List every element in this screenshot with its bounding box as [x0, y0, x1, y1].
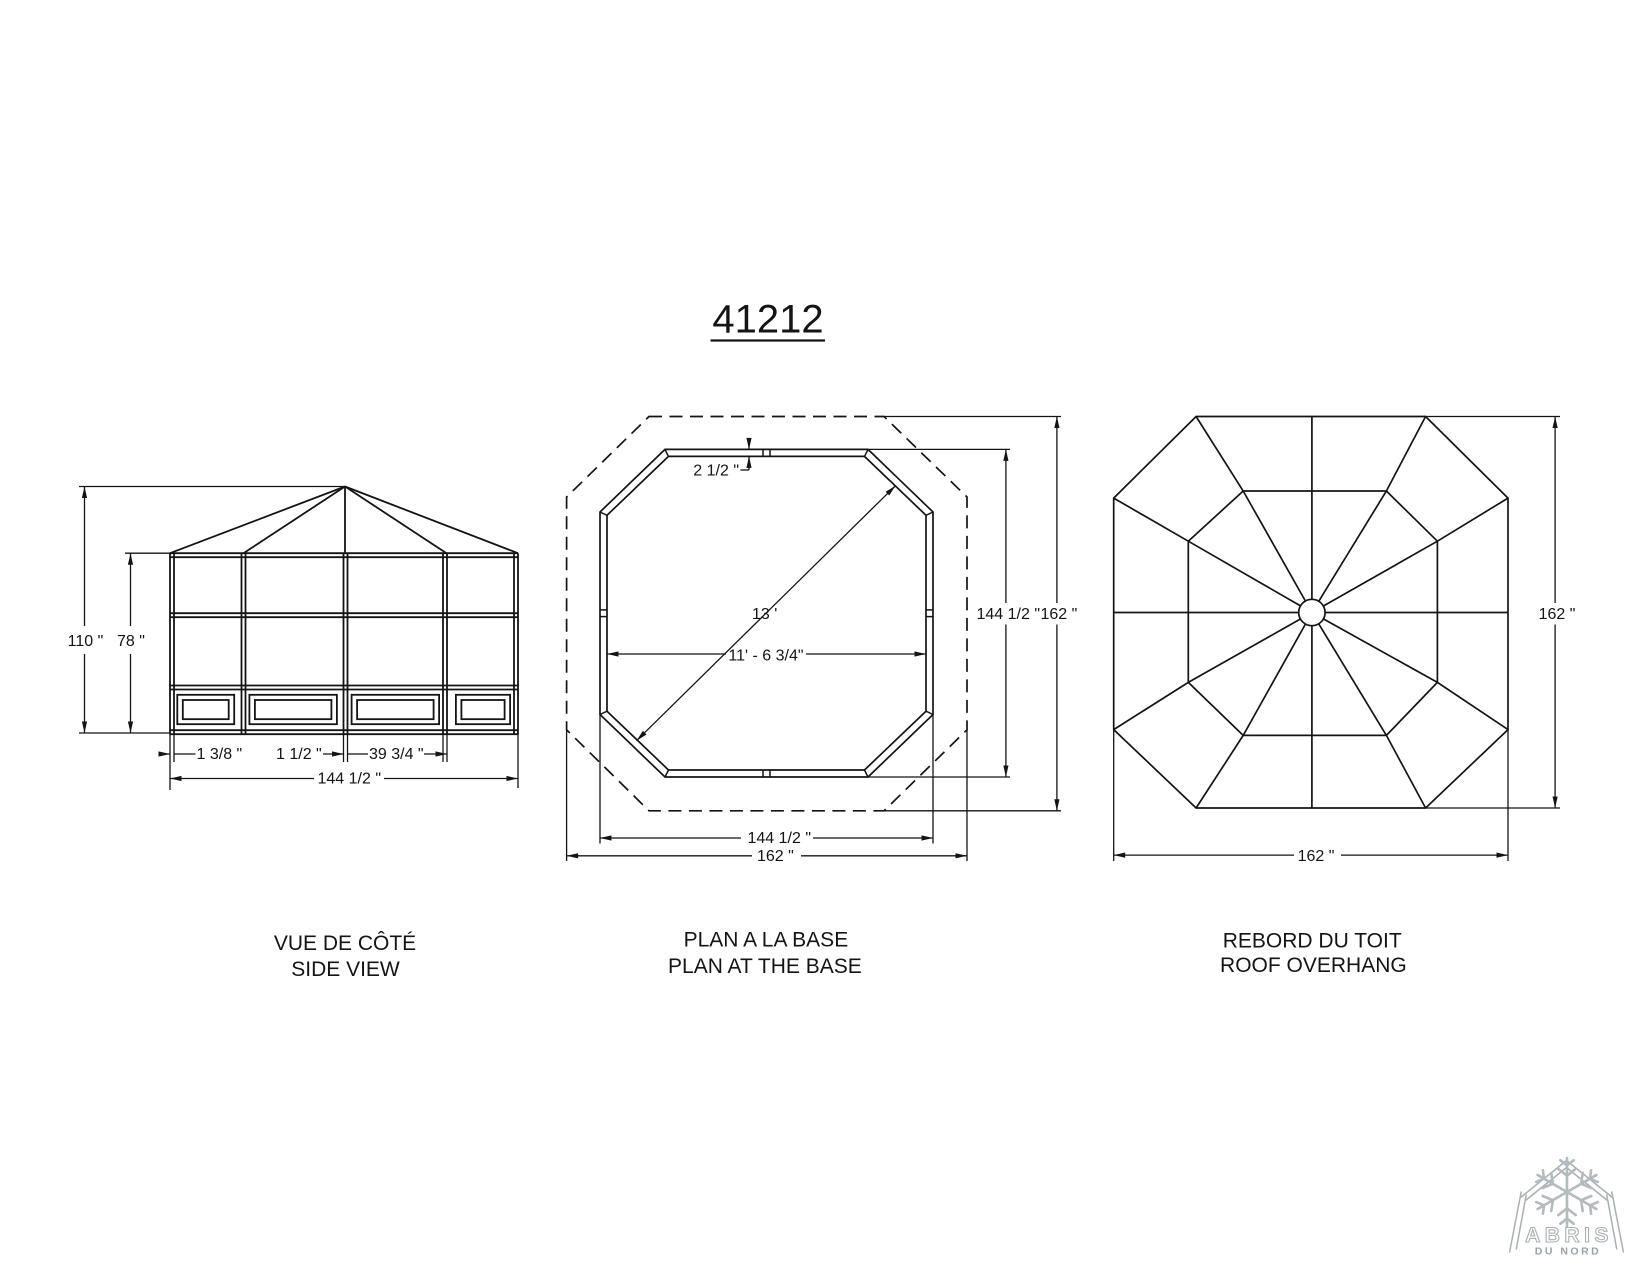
svg-text:1 1/2 ": 1 1/2 "	[276, 746, 322, 763]
svg-text:ROOF OVERHANG: ROOF OVERHANG	[1220, 954, 1407, 977]
svg-text:110 ": 110 "	[68, 633, 104, 650]
svg-text:144 1/2 ": 144 1/2 "	[748, 830, 812, 847]
svg-text:13 ': 13 '	[752, 606, 777, 623]
svg-text:PLAN A LA BASE: PLAN A LA BASE	[684, 928, 849, 951]
svg-text:162 ": 162 "	[1041, 606, 1078, 623]
svg-text:REBORD DU TOIT: REBORD DU TOIT	[1223, 929, 1402, 952]
svg-text:PLAN AT THE BASE: PLAN AT THE BASE	[668, 955, 862, 978]
svg-text:39 3/4 ": 39 3/4 "	[369, 746, 424, 763]
svg-text:78 ": 78 "	[117, 633, 145, 650]
svg-text:SIDE VIEW: SIDE VIEW	[291, 958, 400, 981]
svg-text:144 1/2 ": 144 1/2 "	[977, 606, 1041, 623]
svg-text:162 ": 162 "	[1539, 606, 1576, 623]
svg-text:DU NORD: DU NORD	[1535, 1246, 1602, 1258]
svg-text:2 1/2 ": 2 1/2 "	[693, 463, 739, 480]
svg-text:VUE DE CÔTÉ: VUE DE CÔTÉ	[274, 932, 416, 955]
svg-text:162 ": 162 "	[1298, 848, 1335, 865]
svg-text:11' - 6 3/4": 11' - 6 3/4"	[728, 648, 803, 665]
svg-text:144 1/2 ": 144 1/2 "	[318, 771, 382, 788]
svg-text:41212: 41212	[712, 298, 823, 342]
svg-text:ABRIS: ABRIS	[1525, 1224, 1613, 1247]
svg-text:162 ": 162 "	[757, 848, 794, 865]
svg-text:1 3/8 ": 1 3/8 "	[197, 746, 243, 763]
